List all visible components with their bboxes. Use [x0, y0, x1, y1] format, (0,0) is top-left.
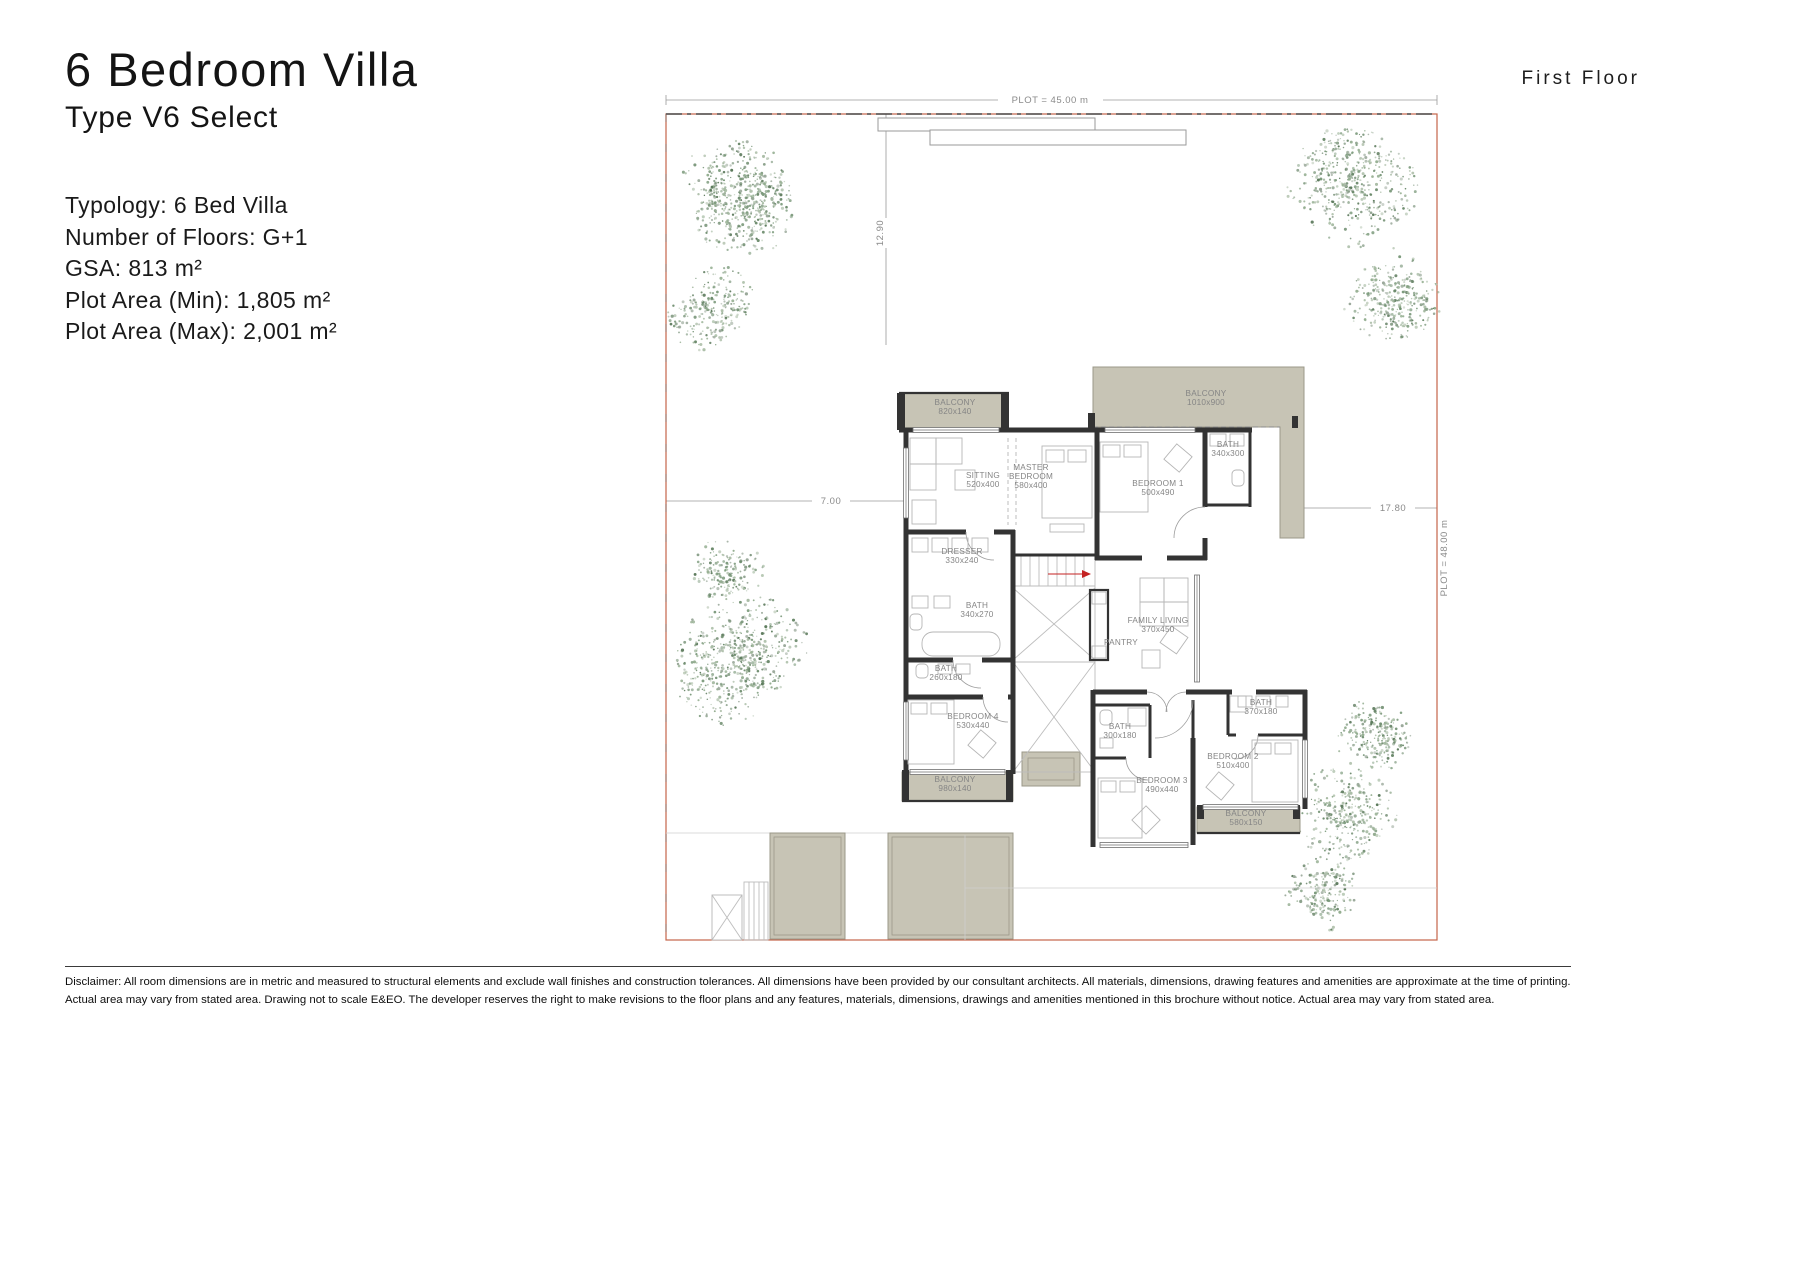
dimension-plot-width: PLOT = 45.00 m	[1012, 95, 1089, 106]
room-label-bath-master: BATH340x270	[960, 601, 993, 619]
driveway-garage	[666, 833, 1437, 940]
room-label-pantry: PANTRY	[1104, 638, 1138, 647]
room-label-bedroom-4: BEDROOM 4530x440	[947, 712, 999, 730]
dimension-dim-7-00: 7.00	[821, 496, 842, 507]
room-label-bath-bed-2: BATH370x180	[1244, 698, 1277, 716]
room-label-bedroom-1: BEDROOM 1500x490	[1132, 479, 1184, 497]
gate-walls	[878, 118, 1186, 145]
dimension-dim-17-80: 17.80	[1380, 503, 1406, 514]
dimension-labels: PLOT = 45.00 m12.907.0017.80PLOT = 48.00…	[821, 95, 1450, 596]
room-label-balcony-bed-4: BALCONY980x140	[935, 775, 976, 793]
tree-cluster-3	[676, 596, 808, 725]
plot-boundary	[666, 114, 1437, 940]
footer: Disclaimer: All room dimensions are in m…	[65, 966, 1571, 1010]
room-label-bath-bed-3: BATH300x180	[1103, 722, 1136, 740]
room-label-dresser: DRESSER330x240	[941, 547, 982, 565]
tree-cluster-8	[1284, 858, 1355, 932]
dimension-dim-12-90: 12.90	[875, 220, 886, 246]
tree-cluster-6	[1338, 701, 1412, 769]
tree-cluster-2	[693, 541, 765, 604]
tree-cluster-1	[667, 266, 753, 351]
footer-rule	[65, 966, 1571, 967]
room-label-balcony-master: BALCONY1010x900	[1186, 389, 1227, 407]
floor-plan-drawing: BALCONY820x140BALCONY1010x900SITTING520x…	[0, 0, 1800, 1273]
room-label-bedroom-2: BEDROOM 2510x400	[1207, 752, 1259, 770]
disclaimer-line-1: Disclaimer: All room dimensions are in m…	[65, 975, 1571, 990]
tree-cluster-7	[1297, 762, 1398, 864]
dimension-plot-depth: PLOT = 48.00 m	[1439, 520, 1450, 597]
room-labels: BALCONY820x140BALCONY1010x900SITTING520x…	[929, 389, 1277, 827]
stairs-and-courtyard	[1013, 555, 1095, 772]
tree-cluster-5	[1343, 247, 1440, 339]
landscape-trees	[667, 128, 1440, 931]
room-label-master-bedroom: MASTERBEDROOM580x400	[1009, 463, 1053, 490]
brochure-page: 6 Bedroom Villa Type V6 Select Typology:…	[0, 0, 1800, 1273]
disclaimer-line-2: Actual area may vary from stated area. D…	[65, 993, 1571, 1008]
pantry-closet	[1090, 590, 1108, 660]
stair-direction-arrow	[1082, 570, 1091, 578]
room-label-balcony-bed-2: BALCONY580x150	[1226, 809, 1267, 827]
room-label-bath-bedroom-1: BATH340x300	[1211, 440, 1244, 458]
room-label-bath-shared: BATH260x180	[929, 664, 962, 682]
tree-cluster-0	[682, 140, 793, 255]
tree-cluster-4	[1286, 128, 1418, 248]
room-label-bedroom-3: BEDROOM 3490x440	[1136, 776, 1188, 794]
room-label-balcony-1: BALCONY820x140	[935, 398, 976, 416]
room-label-sitting: SITTING520x400	[966, 471, 1000, 489]
